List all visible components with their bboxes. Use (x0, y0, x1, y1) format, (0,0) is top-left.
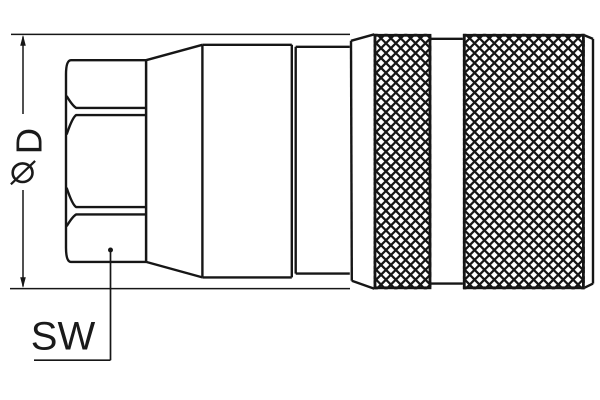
svg-text:D: D (8, 128, 49, 154)
svg-text:SW: SW (31, 315, 96, 359)
